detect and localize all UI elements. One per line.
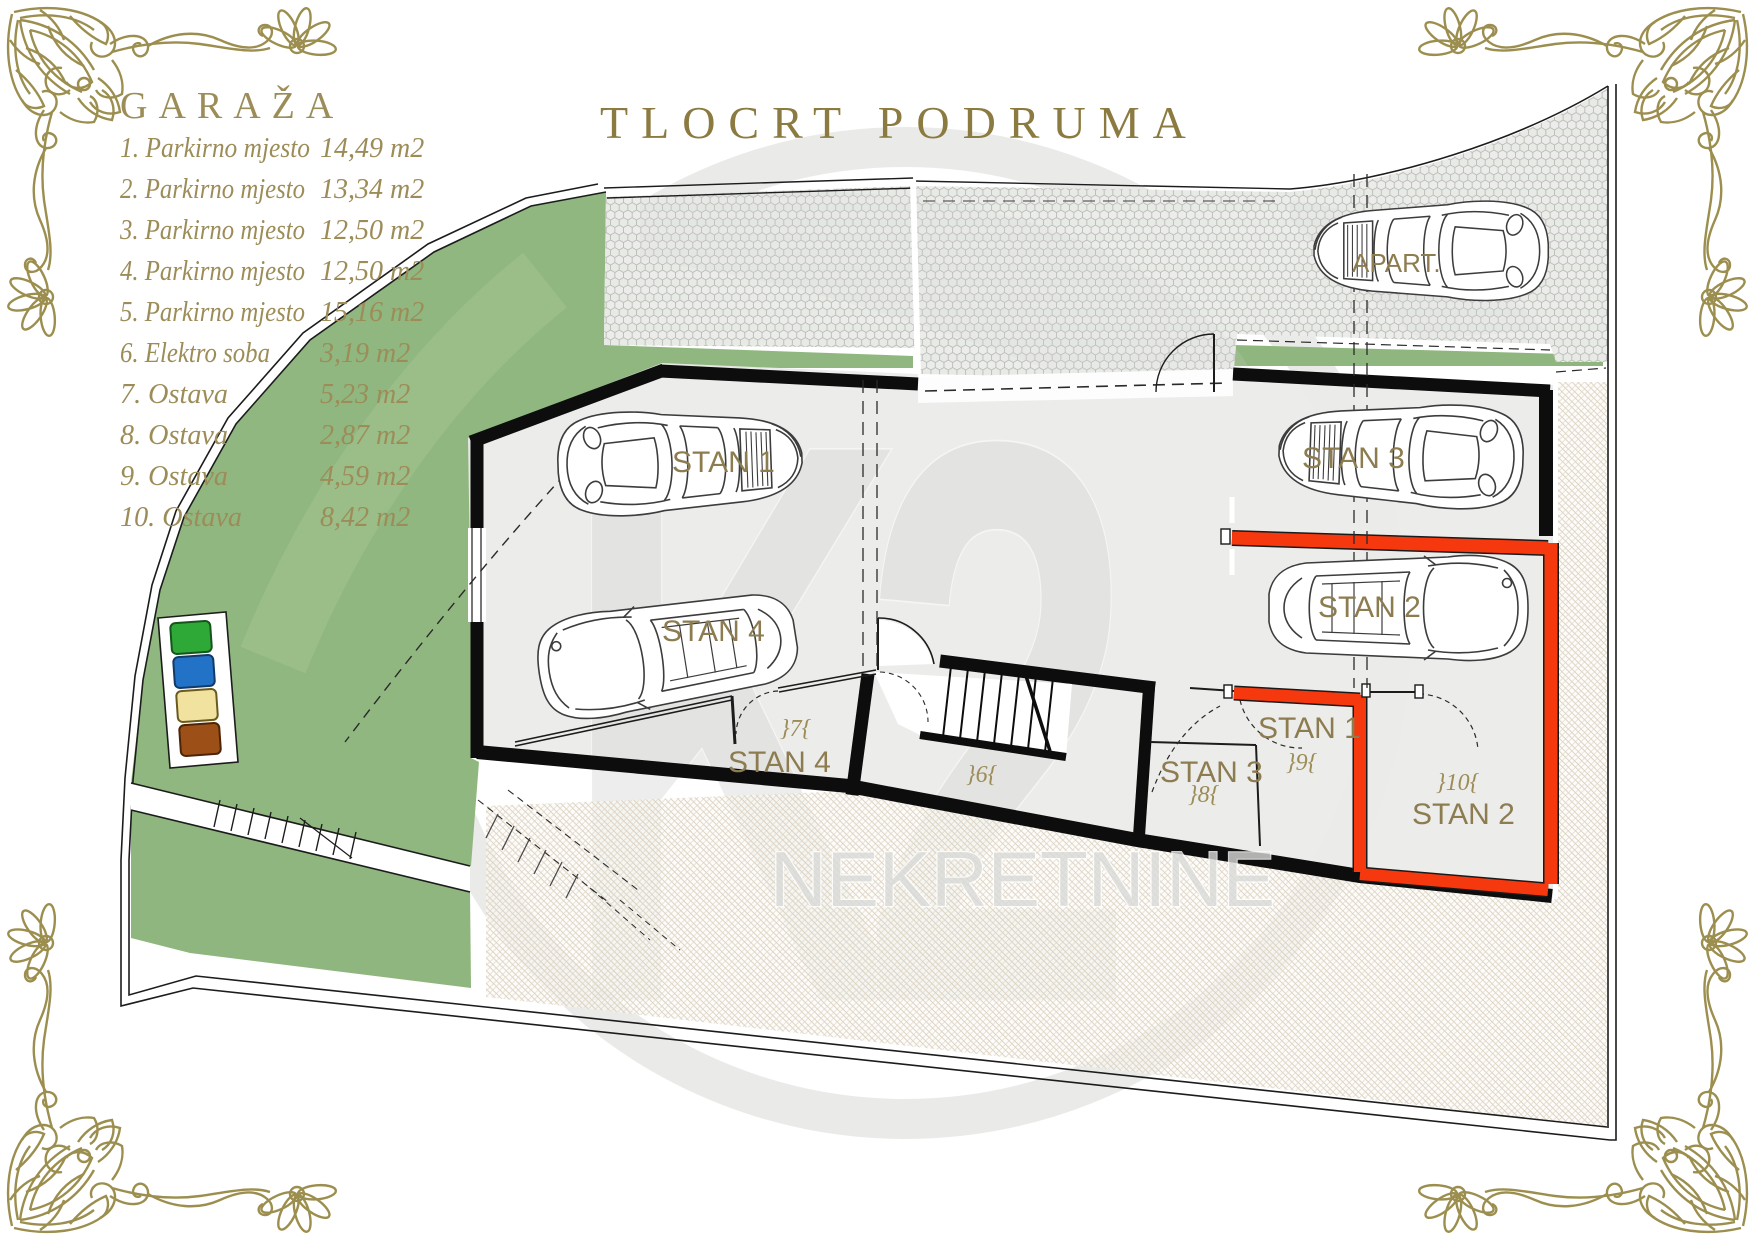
svg-text:}7{: }7{ <box>780 716 812 742</box>
svg-text:}8{: }8{ <box>1188 782 1220 808</box>
svg-text:}9{: }9{ <box>1286 750 1318 776</box>
svg-text:4,59 m2: 4,59 m2 <box>320 461 410 492</box>
svg-text:7. Ostava: 7. Ostava <box>120 379 228 410</box>
svg-text:TLOCRT PODRUMA: TLOCRT PODRUMA <box>600 97 1199 148</box>
svg-text:STAN 3: STAN 3 <box>1302 442 1405 475</box>
svg-text:8. Ostava: 8. Ostava <box>120 420 228 451</box>
svg-text:STAN 2: STAN 2 <box>1412 798 1515 831</box>
svg-text:2. Parkirno mjesto: 2. Parkirno mjesto <box>120 174 305 205</box>
svg-text:10. Ostava: 10. Ostava <box>120 502 242 533</box>
svg-text:STAN 2: STAN 2 <box>1318 591 1421 624</box>
svg-text:STAN 4: STAN 4 <box>662 615 765 648</box>
svg-text:12,50 m2: 12,50 m2 <box>320 256 424 287</box>
svg-text:14,49 m2: 14,49 m2 <box>320 133 424 164</box>
svg-text:2,87 m2: 2,87 m2 <box>320 420 410 451</box>
svg-text:}6{: }6{ <box>966 762 998 788</box>
svg-text:5. Parkirno mjesto: 5. Parkirno mjesto <box>120 297 305 328</box>
svg-text:STAN 1: STAN 1 <box>1258 712 1361 745</box>
svg-text:13,34 m2: 13,34 m2 <box>320 174 424 205</box>
svg-text:STAN 1: STAN 1 <box>672 446 775 479</box>
svg-text:4. Parkirno mjesto: 4. Parkirno mjesto <box>120 256 305 287</box>
svg-text:5,23 m2: 5,23 m2 <box>320 379 410 410</box>
svg-text:3. Parkirno mjesto: 3. Parkirno mjesto <box>119 215 305 246</box>
svg-text:6. Elektro soba: 6. Elektro soba <box>120 338 270 369</box>
svg-text:12,50 m2: 12,50 m2 <box>320 215 424 246</box>
svg-text:9. Ostava: 9. Ostava <box>120 461 228 492</box>
svg-text:STAN 4: STAN 4 <box>728 746 831 779</box>
svg-text:8,42 m2: 8,42 m2 <box>320 502 410 533</box>
svg-text:APART.: APART. <box>1352 248 1441 278</box>
svg-text:3,19 m2: 3,19 m2 <box>319 338 410 369</box>
svg-text:15,16 m2: 15,16 m2 <box>320 297 424 328</box>
svg-text:1. Parkirno mjesto: 1. Parkirno mjesto <box>120 133 310 164</box>
svg-text:GARAŽA: GARAŽA <box>120 85 344 127</box>
svg-text:NEKRETNINE: NEKRETNINE <box>770 835 1275 923</box>
svg-text:}10{: }10{ <box>1436 770 1480 796</box>
